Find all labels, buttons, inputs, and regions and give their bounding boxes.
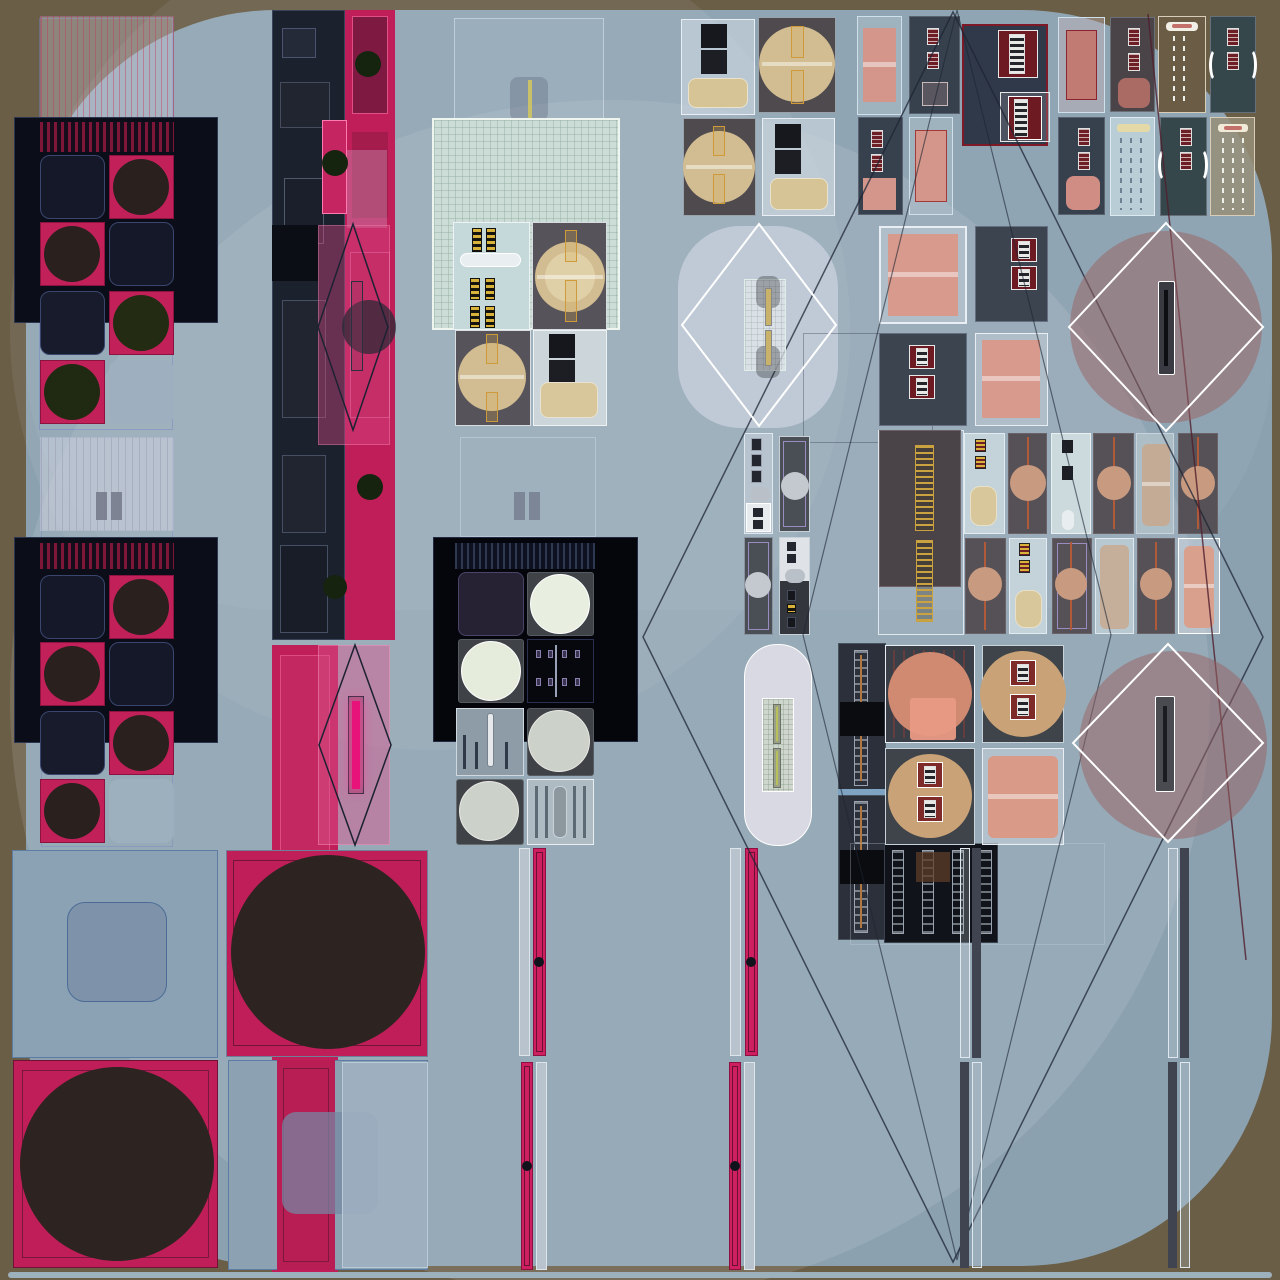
yellow-slot — [713, 174, 725, 204]
pink-strip — [533, 848, 546, 1056]
col2-module — [282, 455, 326, 533]
mini-module — [1062, 466, 1073, 480]
ladder-yellow — [916, 540, 933, 622]
tower-blue-joint — [838, 789, 886, 795]
ladder-red — [1008, 96, 1042, 140]
tile — [109, 642, 174, 706]
tower-core — [860, 655, 862, 781]
tile — [109, 711, 174, 775]
salmon-panel — [982, 748, 1064, 845]
tile-circle — [113, 159, 169, 215]
sheet-tab — [111, 492, 122, 520]
tile-circle — [528, 710, 590, 772]
tile — [40, 779, 105, 843]
salmon-foot — [1118, 78, 1150, 108]
lozenge-core — [776, 751, 778, 785]
grid-sheet-top — [40, 16, 174, 148]
red-module — [1227, 52, 1239, 70]
sheet-tab — [514, 492, 525, 520]
tile-circle — [44, 226, 100, 282]
module-cell — [1136, 433, 1174, 534]
strip-top-light — [780, 538, 809, 581]
red-module — [1078, 152, 1090, 170]
white-diamond-stadium — [679, 221, 839, 429]
tick — [535, 786, 538, 838]
tile — [527, 572, 594, 636]
tan-circle-line — [686, 165, 752, 169]
diamond-slot-core — [1164, 290, 1168, 366]
ghost-frame — [850, 843, 1105, 945]
speck — [562, 678, 567, 686]
ladder — [1014, 99, 1028, 137]
speck — [575, 678, 580, 686]
panel — [885, 748, 975, 845]
white-diamond — [1066, 220, 1266, 434]
module-cell — [964, 433, 1005, 534]
panel — [762, 118, 835, 216]
mini-module — [753, 508, 763, 517]
white-pill — [460, 253, 521, 267]
orange-line — [1027, 437, 1029, 529]
black-block — [701, 24, 727, 48]
connector — [486, 228, 496, 252]
slot — [553, 786, 567, 838]
black-module-panel — [884, 843, 998, 943]
tick — [583, 786, 586, 838]
tile — [109, 575, 174, 639]
salmon-circle — [968, 567, 1002, 601]
strip-inner-outline — [748, 542, 769, 630]
ladder — [1018, 269, 1030, 287]
pink-strip — [729, 1062, 741, 1270]
salmon-line — [863, 62, 896, 67]
salmon-panel — [975, 333, 1048, 426]
dash-col — [1242, 138, 1244, 210]
brown-module — [916, 852, 950, 882]
crimson-square — [226, 850, 428, 1057]
mint-panel — [432, 118, 620, 330]
salmon-line — [1184, 584, 1214, 588]
panel — [758, 17, 836, 113]
tile-circle — [113, 715, 169, 771]
tan-pill — [1117, 124, 1150, 132]
ladder-frame — [1011, 238, 1037, 262]
module-cell — [1178, 538, 1220, 634]
tan-circle-line — [762, 62, 832, 66]
big-diamond-outline — [640, 9, 1266, 1265]
ladder-frame — [1010, 694, 1036, 720]
tile — [456, 779, 524, 845]
tile — [40, 575, 105, 639]
col2-magenta-slot — [352, 701, 360, 789]
mini-pill — [750, 487, 770, 502]
speck — [548, 650, 553, 658]
gray-strip — [536, 1062, 547, 1270]
yellow-slot — [713, 126, 725, 156]
dark-green-dot — [323, 575, 347, 599]
col2-module — [282, 28, 316, 58]
salmon-circle — [1010, 465, 1046, 501]
col2-diamond-bottom — [316, 642, 394, 848]
strip-inner-outline — [1057, 543, 1087, 629]
mauve-circle — [1079, 651, 1267, 839]
crimson-square — [13, 1060, 218, 1268]
sub-frame — [922, 82, 948, 106]
tile — [40, 222, 105, 286]
dark-green-dot — [357, 474, 383, 500]
soft-ellipse-top — [10, 0, 850, 750]
red-module — [1078, 128, 1090, 146]
tile — [109, 360, 174, 424]
pill-core — [1224, 126, 1242, 130]
pink-strip-inner — [732, 1066, 738, 1266]
dark-tower — [838, 643, 886, 793]
speck — [536, 678, 541, 686]
tile-circle — [44, 364, 100, 420]
strip-circle — [745, 572, 771, 598]
lozenge-slot — [773, 704, 781, 744]
gray-strip — [730, 848, 741, 1056]
lozenge-core — [776, 707, 778, 741]
pink-overlay-top — [318, 225, 390, 445]
white-subpanel — [746, 503, 771, 532]
panel-brown-light — [1210, 117, 1255, 216]
tile-circle — [44, 783, 100, 839]
yellow-slot — [486, 392, 498, 422]
tan-circle — [980, 651, 1066, 737]
ladder-frame — [998, 30, 1038, 78]
ladder-frame — [1011, 266, 1037, 290]
tower-ladder — [854, 801, 868, 933]
tile-glowline — [555, 645, 557, 697]
tick — [463, 735, 466, 769]
soft-ellipse-main — [10, 100, 1210, 1280]
module-cell — [965, 538, 1006, 634]
gray-strip — [519, 848, 530, 1056]
mini-module — [787, 617, 796, 628]
yellow-slot — [791, 70, 804, 104]
dark-green-dot — [322, 150, 348, 176]
col2-slot-frame — [348, 696, 364, 794]
strip-panel — [779, 537, 810, 635]
panel-light-blocks — [533, 330, 607, 426]
tan-pill — [1015, 590, 1042, 628]
strip-dot — [534, 957, 544, 967]
salmon-circle — [1097, 466, 1131, 500]
tile-circle — [461, 641, 521, 701]
red-module — [1180, 152, 1192, 170]
crimson-inner — [350, 252, 390, 418]
tan-circle — [759, 26, 835, 102]
col2-crimson-strip — [345, 10, 395, 640]
thin-strip-light — [1180, 1062, 1190, 1268]
dash-col — [1173, 36, 1175, 106]
tan-circle — [683, 131, 755, 203]
blue-square-inner — [67, 902, 167, 1002]
speck — [548, 678, 553, 686]
diamond-slot-core — [1163, 706, 1167, 782]
orange-line — [1197, 437, 1199, 529]
mini-pill — [1062, 510, 1074, 530]
ladder — [1017, 664, 1029, 682]
arc-left — [1158, 148, 1172, 182]
panel — [975, 226, 1048, 322]
stadium-slot — [765, 288, 772, 326]
ladder-yellow — [915, 445, 934, 531]
tile-circle — [459, 781, 519, 841]
lavender-overlay — [347, 150, 387, 228]
tile — [458, 639, 524, 703]
col2-module — [282, 300, 326, 418]
crimson-square-inner — [22, 1070, 209, 1258]
black-panel-1 — [14, 117, 218, 323]
panel — [1110, 117, 1155, 216]
tile — [458, 572, 524, 636]
tan-pill — [540, 382, 598, 418]
tile-slot-light — [527, 779, 594, 845]
black-block — [549, 334, 575, 358]
speck — [536, 650, 541, 658]
red-module — [1180, 128, 1192, 146]
black-block — [549, 360, 575, 384]
tile — [109, 155, 174, 219]
speck — [575, 650, 580, 658]
tan-inner-line — [1142, 482, 1170, 486]
panel-brown — [1158, 16, 1206, 113]
light-column — [342, 1062, 428, 1268]
red-inner — [1066, 30, 1097, 100]
dash-col — [1183, 36, 1185, 106]
maroon-line — [1146, 12, 1248, 962]
salmon-line — [988, 794, 1058, 799]
tile — [527, 639, 594, 703]
connector — [787, 604, 796, 613]
red-module — [1227, 28, 1239, 46]
panel — [1210, 16, 1256, 113]
pink-strip-inner — [748, 852, 755, 1052]
tile — [40, 711, 105, 775]
ladder-tower-frame — [878, 430, 964, 635]
orange-line — [1070, 542, 1072, 630]
tan-circle-core — [545, 252, 595, 302]
thin-strip-dark — [960, 1062, 969, 1268]
strip-inner-outline — [783, 441, 806, 527]
crimson-inner — [352, 132, 388, 218]
module-cell — [1178, 433, 1218, 534]
panel — [857, 16, 902, 115]
col2-crimson-column — [272, 645, 338, 1272]
ladder-frame — [917, 762, 943, 788]
red-module — [927, 28, 939, 45]
big-dark-circle — [231, 855, 425, 1049]
orange-line — [984, 542, 986, 630]
black-block — [701, 50, 727, 74]
connector-red — [975, 439, 986, 452]
mauve-circle — [1070, 231, 1262, 423]
canvas-sheen — [26, 10, 1272, 610]
left-col-outline-bot — [41, 437, 173, 847]
mini-module — [787, 554, 796, 563]
diamond-slot — [1155, 696, 1175, 792]
ghost-rect — [803, 333, 933, 443]
sheet-tab — [96, 492, 107, 520]
tile-circle — [113, 579, 169, 635]
blue-rounded-overlay — [282, 1112, 378, 1214]
black-panel-2 — [14, 537, 218, 743]
ladder-tower-dark — [879, 430, 961, 587]
hot-grid — [893, 650, 967, 738]
connector — [472, 228, 482, 252]
panel — [1110, 17, 1155, 112]
yellow-slot — [791, 26, 804, 58]
red-module — [1128, 28, 1140, 46]
hatch-row-3 — [455, 543, 595, 569]
mini-module — [751, 454, 762, 467]
mini-module — [787, 590, 796, 601]
mini-module — [751, 438, 762, 451]
tile-circle — [44, 646, 100, 702]
thin-strip-dark — [972, 848, 981, 1058]
hatch-row-1 — [40, 122, 174, 152]
connector — [485, 306, 495, 328]
pink-overlay-bottom — [318, 645, 390, 845]
bottom-strip — [8, 1272, 1272, 1278]
tan-circle-line — [537, 275, 603, 279]
panel — [982, 645, 1064, 743]
crimson-square-inner — [233, 860, 421, 1046]
thin-strip-dark — [1180, 848, 1189, 1058]
pink-strip — [521, 1062, 533, 1270]
thin-strip-light — [960, 848, 970, 1058]
tan-pill — [770, 178, 828, 210]
left-col-outline-top — [39, 18, 173, 430]
tile — [109, 222, 174, 286]
dash-col — [1140, 138, 1142, 210]
salmon-inner — [915, 130, 947, 202]
blue-square — [228, 1060, 428, 1270]
strip-panel — [744, 537, 773, 635]
pink-strip-inner — [524, 1066, 530, 1266]
panel — [1058, 117, 1105, 215]
dash-col — [1130, 138, 1132, 210]
col2-slot-top — [351, 281, 363, 371]
red-module — [871, 130, 883, 148]
crimson-column-low-inner — [283, 1068, 329, 1262]
col2-module — [280, 82, 330, 128]
tan-circle — [888, 754, 972, 838]
tile — [527, 708, 594, 776]
tick — [545, 786, 548, 838]
pink-strip — [745, 848, 758, 1056]
big-dark-circle — [20, 1067, 214, 1261]
stadium-blob — [756, 346, 780, 378]
ladder — [1018, 241, 1030, 259]
tile — [109, 291, 174, 355]
ladder — [916, 348, 928, 366]
tile-circle — [113, 295, 169, 351]
module-cell — [1009, 538, 1047, 634]
gray-strip — [744, 1062, 755, 1270]
salmon-inner — [863, 28, 896, 102]
tile — [40, 360, 105, 424]
panel — [1160, 117, 1207, 216]
hot-square — [910, 698, 956, 740]
connector — [470, 278, 480, 300]
salmon-inner — [863, 178, 896, 210]
panel — [1058, 17, 1105, 113]
dark-green-dot — [355, 51, 381, 77]
diamond-slot — [1158, 281, 1175, 375]
red-module — [927, 52, 939, 69]
module-cell — [1052, 538, 1092, 634]
mid-slot-body — [511, 118, 548, 164]
ladder — [1009, 34, 1025, 74]
crimson-inner — [352, 16, 388, 114]
slot — [487, 713, 494, 767]
stadium-overlay — [678, 226, 838, 428]
red-module — [1128, 53, 1140, 71]
panel — [858, 117, 903, 215]
panel — [909, 16, 960, 114]
stadium-rect — [744, 279, 786, 371]
salmon-line — [982, 376, 1040, 381]
col2-dark-stack — [272, 10, 345, 640]
mint-sub-light — [453, 222, 530, 330]
col2-diamond-top — [315, 221, 391, 433]
black-block — [775, 150, 801, 174]
mini-module — [787, 542, 796, 551]
lozenge — [744, 644, 812, 846]
tick — [573, 786, 576, 838]
connector — [485, 278, 495, 300]
ghost-frame — [460, 437, 596, 537]
tower-block — [840, 850, 884, 884]
white-diamond — [1070, 641, 1266, 845]
tan-inner — [1142, 444, 1170, 526]
salmon-panel — [879, 226, 967, 324]
tan-circle-line — [460, 375, 524, 379]
strip-circle — [781, 472, 809, 500]
tower-ladder — [952, 850, 964, 934]
arc-left — [1209, 48, 1223, 82]
blue-square — [12, 850, 218, 1058]
module-cell — [1008, 433, 1047, 534]
yellow-slot — [486, 334, 498, 364]
crimson-column-inner — [280, 655, 330, 1051]
sheet-tab — [529, 492, 540, 520]
ladder — [916, 378, 928, 396]
mint-sub-dark — [532, 222, 607, 330]
module-cell — [1095, 538, 1134, 634]
salmon-foot — [1066, 176, 1100, 210]
thin-strip-dark — [1168, 1062, 1177, 1268]
connector-red — [1019, 543, 1030, 556]
mid-slot-line — [528, 80, 532, 162]
salmon-inner — [1184, 546, 1214, 628]
strip-panel — [744, 433, 773, 534]
tan-pill — [688, 78, 748, 108]
strip-dot — [746, 957, 756, 967]
ladder — [924, 766, 936, 784]
tan-circle — [535, 242, 605, 312]
ladder-frame — [909, 345, 935, 369]
salmon-inner — [982, 340, 1040, 418]
salmon-circle — [1181, 466, 1215, 500]
panel — [879, 333, 967, 426]
mid-slot-cap — [510, 77, 548, 121]
black-block — [775, 124, 801, 148]
ladder-frame — [1010, 660, 1036, 686]
